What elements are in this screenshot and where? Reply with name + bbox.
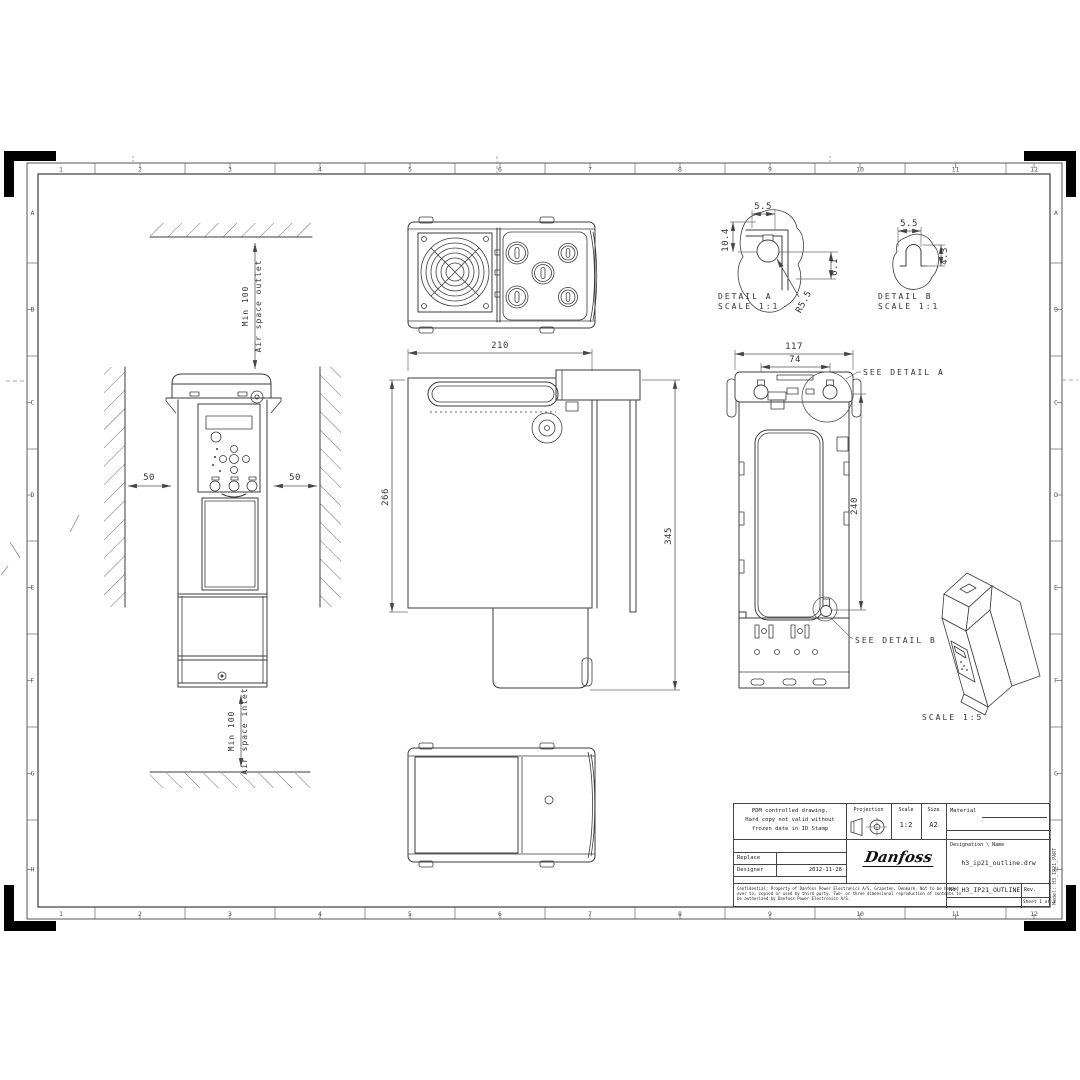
side-view: 210 266 345 [381, 341, 680, 690]
detail-a-dim-10-4: 10.4 [721, 228, 731, 252]
detail-a-view: 5.5 10.4 6.1 R5.5 DETAIL A SCALE 1:1 [718, 202, 840, 315]
iso-view: SCALE 1:5 [922, 573, 1040, 722]
dim-gap-left: 50 [143, 473, 155, 483]
detail-a-dim-5-5: 5.5 [754, 202, 772, 212]
material-label: Material [950, 808, 977, 814]
no-label: No. [949, 887, 959, 893]
dim-depth-210: 210 [491, 341, 509, 351]
dim-hole-height-240: 240 [850, 497, 860, 515]
first-angle-projection-icon [849, 817, 891, 837]
dim-inlet-min100: Min 100 [227, 711, 236, 752]
drawing-sheet: 112233445566778899101011111212AABBCCDDEE… [0, 0, 1080, 1080]
pdm-note-line3: frozen date in ID Stamp [734, 826, 846, 832]
fan-grill [421, 237, 489, 309]
detail-a-dim-6-1: 6.1 [830, 258, 840, 276]
dim-gap-right: 50 [289, 473, 301, 483]
dim-width-117: 117 [785, 342, 803, 352]
no-value: H3_IP21_OUTLINE [960, 886, 1022, 894]
zone-col-bottom-1: 1 [59, 910, 63, 918]
pdm-note-line1: PDM controlled drawing. [734, 808, 846, 814]
projection-label: Projection [846, 807, 891, 813]
top-view [408, 217, 597, 333]
size-label: Size [921, 807, 946, 813]
designer-label: Designer [737, 867, 764, 873]
pdm-note-line2: Hard copy not valid without [734, 817, 846, 823]
front-unit-outline [166, 374, 281, 687]
dim-body-height-266: 266 [381, 488, 391, 506]
designation-label: Designation \ Name [950, 842, 1004, 848]
title-block: PDM controlled drawing. Hard copy not va… [733, 803, 1050, 907]
dim-hole-pitch-74: 74 [789, 355, 801, 365]
rev-label: Rev. [1024, 887, 1036, 893]
model-vertical-label: Model: H3_IP21_PART [1052, 848, 1058, 905]
front-clearance-view: Min 100 Air space outlet Min 100 Air spa… [104, 223, 341, 788]
sheet-label: Sheet 1 of 1 [1023, 900, 1056, 905]
danfoss-logo: Danfoss [862, 848, 936, 867]
designer-date: 2012-11-28 [776, 867, 842, 873]
size-value: A2 [921, 821, 946, 829]
zone-row-left-A: A [31, 209, 35, 217]
label-air-space-outlet: Air space outlet [254, 259, 263, 352]
drawing-svg: 112233445566778899101011111212AABBCCDDEE… [0, 0, 1080, 1080]
detail-b-view: 5.5 4.3 DETAIL B SCALE 1:1 [878, 219, 950, 311]
detail-b-scale: SCALE 1:1 [878, 302, 939, 311]
confidential-line3: be authorized by Danfoss Power Electroni… [737, 896, 944, 901]
iso-scale-label: SCALE 1:5 [922, 713, 983, 722]
side-unit-outline [408, 370, 640, 688]
scale-label: Scale [891, 807, 921, 813]
detail-a-title: DETAIL A [718, 292, 773, 301]
label-air-space-inlet: Air space inlet [240, 687, 249, 774]
callout-see-detail-b: SEE DETAIL B [855, 636, 937, 645]
rear-view: 117 74 240 [727, 342, 945, 688]
scale-value: 1:2 [891, 821, 921, 829]
dim-outlet-min100: Min 100 [241, 286, 250, 327]
zone-col-top-1: 1 [59, 166, 63, 174]
callout-see-detail-a: SEE DETAIL A [863, 368, 945, 377]
detail-b-dim-5-5: 5.5 [900, 219, 918, 229]
detail-b-title: DETAIL B [878, 292, 933, 301]
rear-unit-outline [727, 372, 861, 688]
detail-a-scale: SCALE 1:1 [718, 302, 779, 311]
designation-value: h3_ip21_outline.drw [946, 859, 1051, 867]
replace-label: Replace [737, 855, 760, 861]
cable-glands [506, 242, 578, 308]
bottom-view [408, 743, 595, 867]
dim-total-height-345: 345 [664, 527, 674, 545]
detail-b-dim-4-3: 4.3 [940, 247, 950, 265]
zone-row-right-A: A [1054, 209, 1058, 217]
